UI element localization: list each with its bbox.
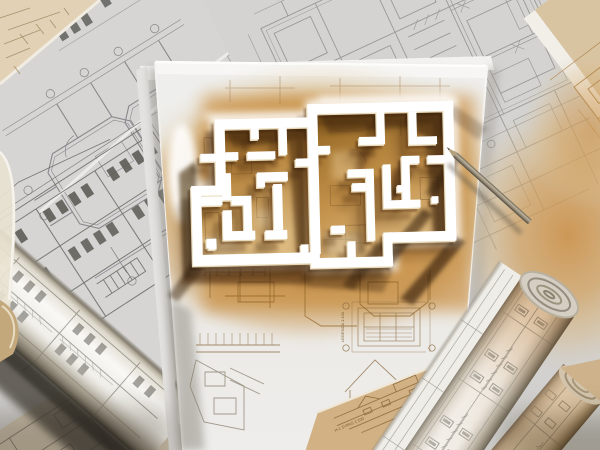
svg-text:LEGENDA 1:100: LEGENDA 1:100 — [340, 311, 345, 342]
